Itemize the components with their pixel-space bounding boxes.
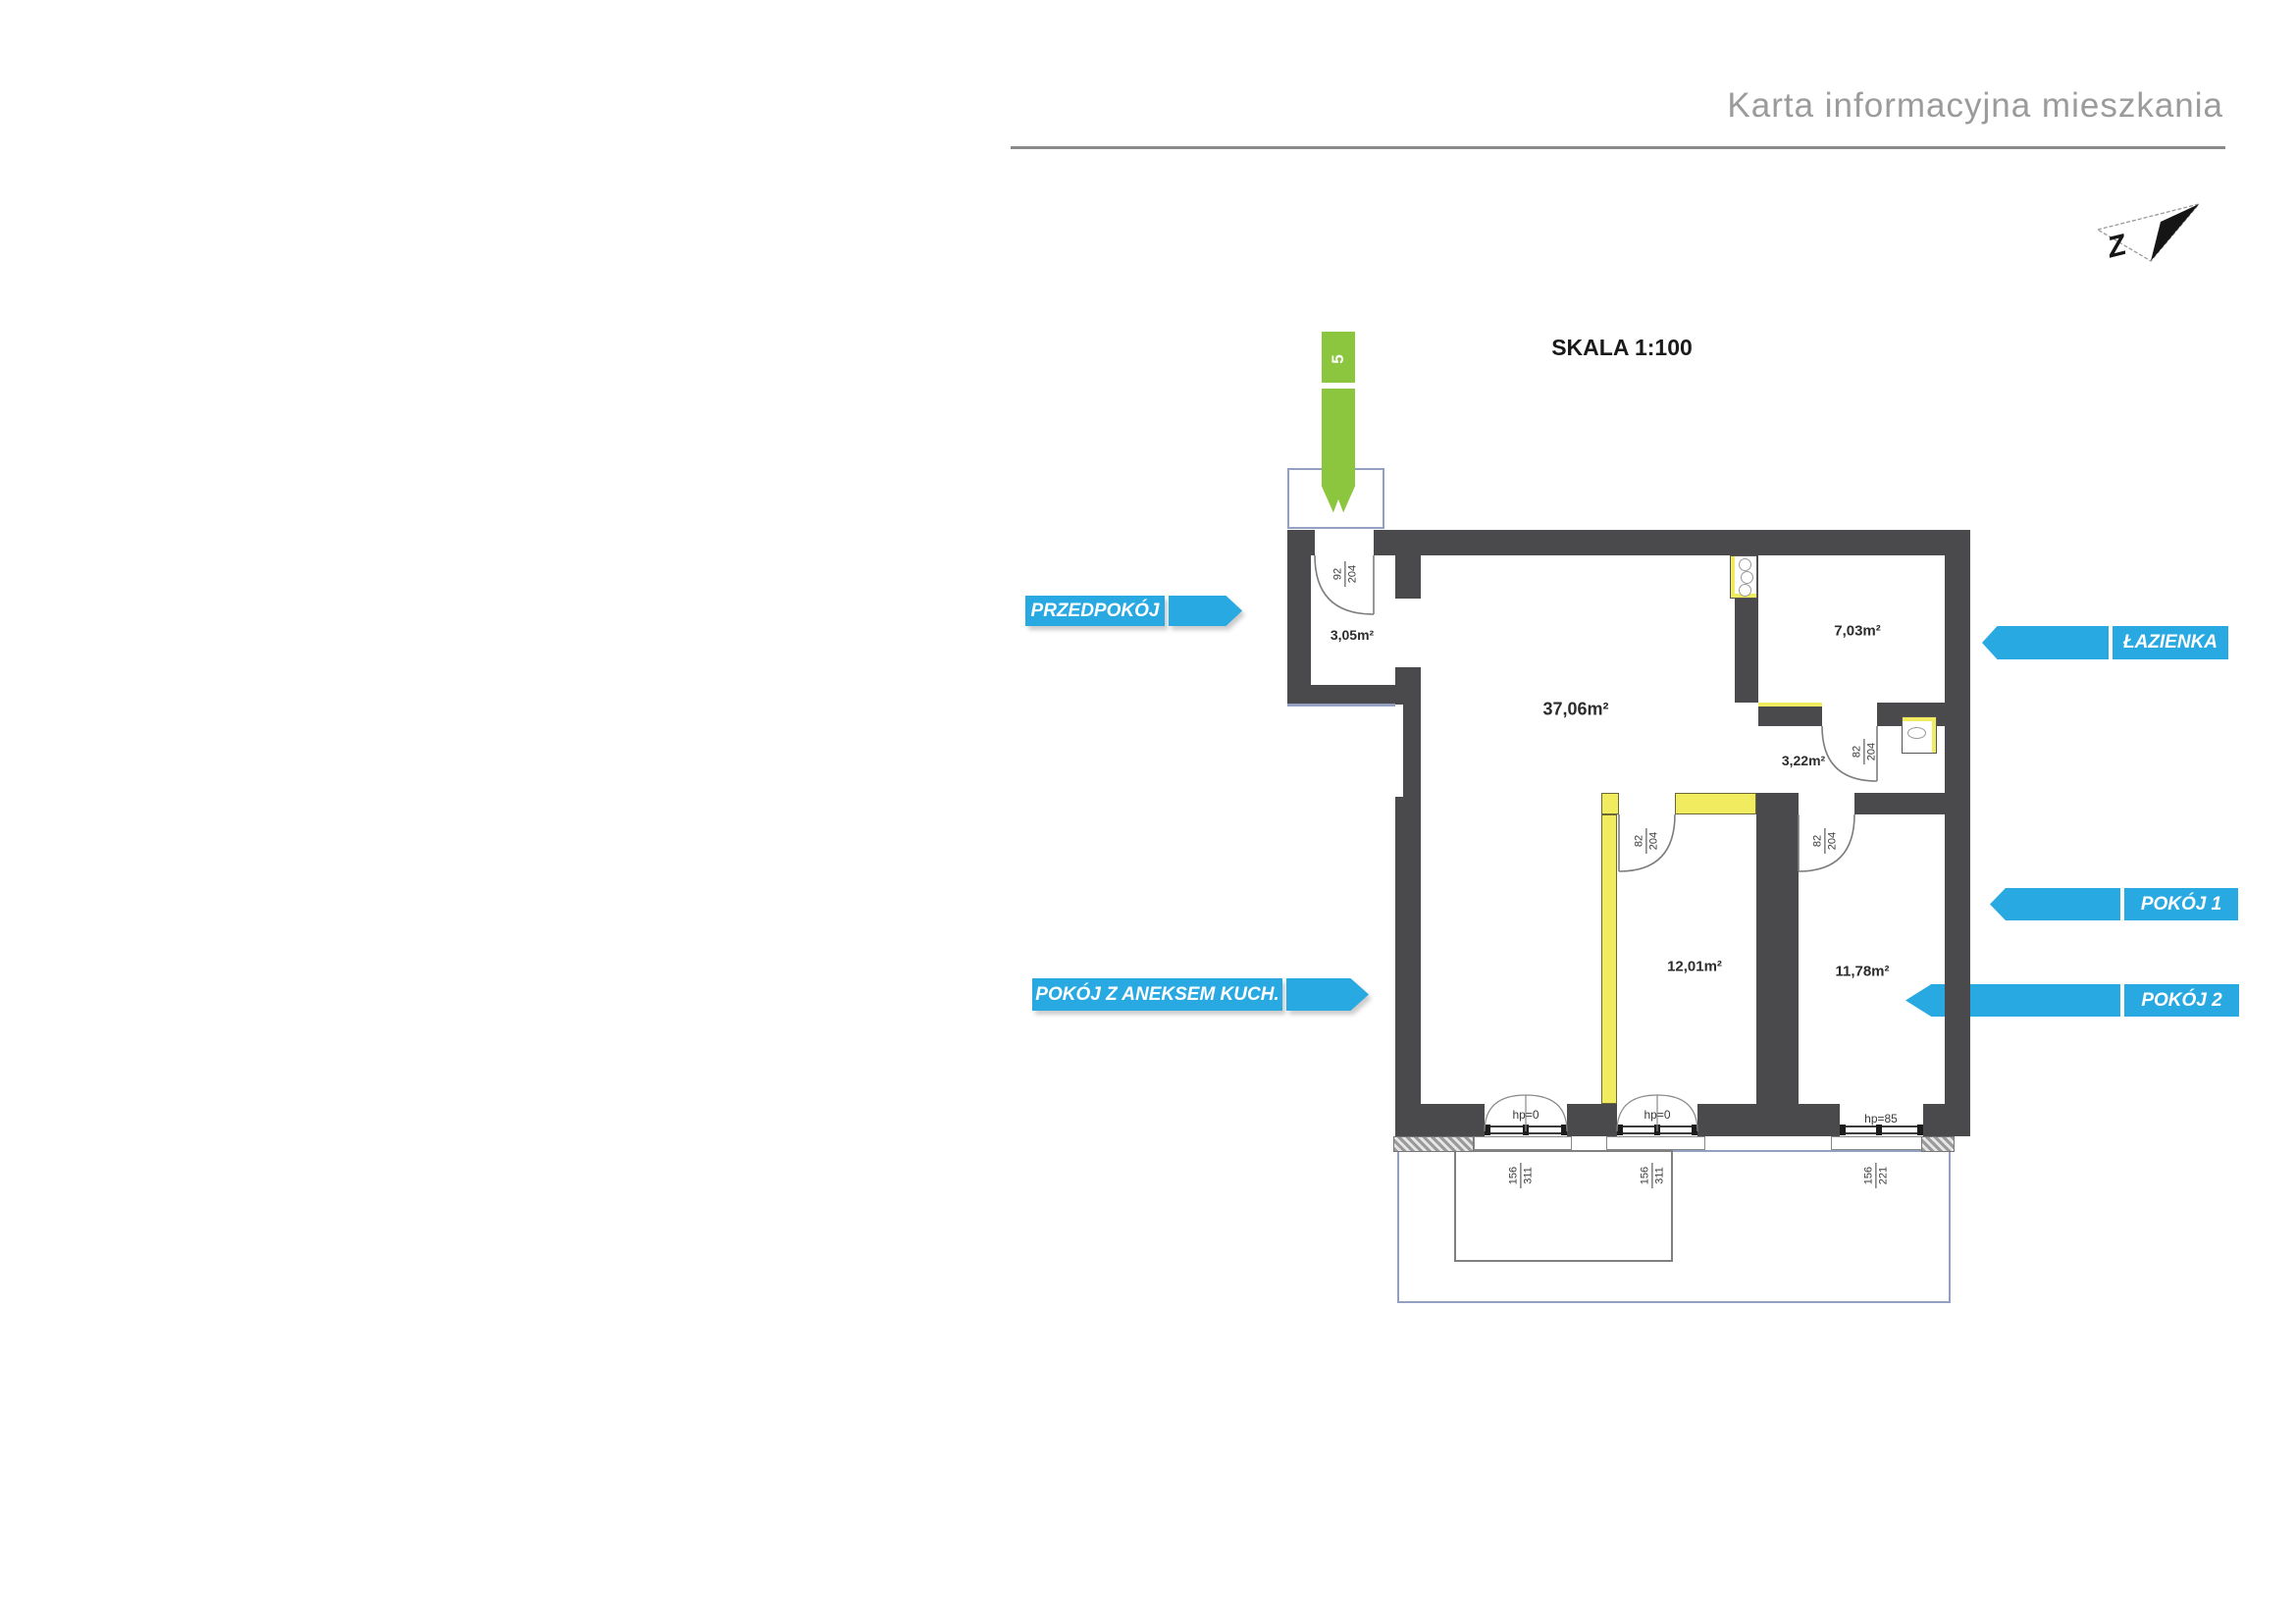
entry-direction-arrow: 5 (1322, 332, 1355, 520)
apartment-info-card: Karta informacyjna mieszkania SKALA 1:10… (0, 0, 2296, 1623)
dim-window-2: 156311 (1639, 1163, 1665, 1188)
window3-sill-height: hp=85 (1864, 1112, 1898, 1126)
area-przedpokoj: 3,05m² (1331, 627, 1374, 643)
area-pokoj-z-aneksem: 37,06m² (1542, 700, 1608, 720)
dim-bathroom-door: 82204 (1851, 739, 1877, 764)
dim-window-1: 156311 (1507, 1163, 1534, 1188)
dim-window-3: 156221 (1862, 1163, 1889, 1188)
door-swing-arcs (0, 0, 2296, 1623)
dim-room2-door: 82204 (1811, 828, 1838, 854)
area-lazienka: 7,03m² (1834, 623, 1881, 640)
unit-number: 5 (1329, 342, 1348, 376)
area-pokoj-1: 12,01m² (1667, 959, 1722, 975)
window2-sill-height: hp=0 (1644, 1108, 1670, 1122)
area-pokoj-2: 11,78m² (1835, 964, 1889, 980)
area-korytarz: 3,22m² (1782, 753, 1825, 768)
dim-entry-door: 92204 (1331, 561, 1358, 587)
ventilation-shaft-1 (1730, 555, 1757, 599)
window1-sill-height: hp=0 (1512, 1108, 1539, 1122)
dim-room1-door: 82204 (1633, 828, 1659, 854)
ventilation-shaft-2 (1902, 716, 1937, 754)
entry-arrow-stripe (1322, 383, 1355, 389)
